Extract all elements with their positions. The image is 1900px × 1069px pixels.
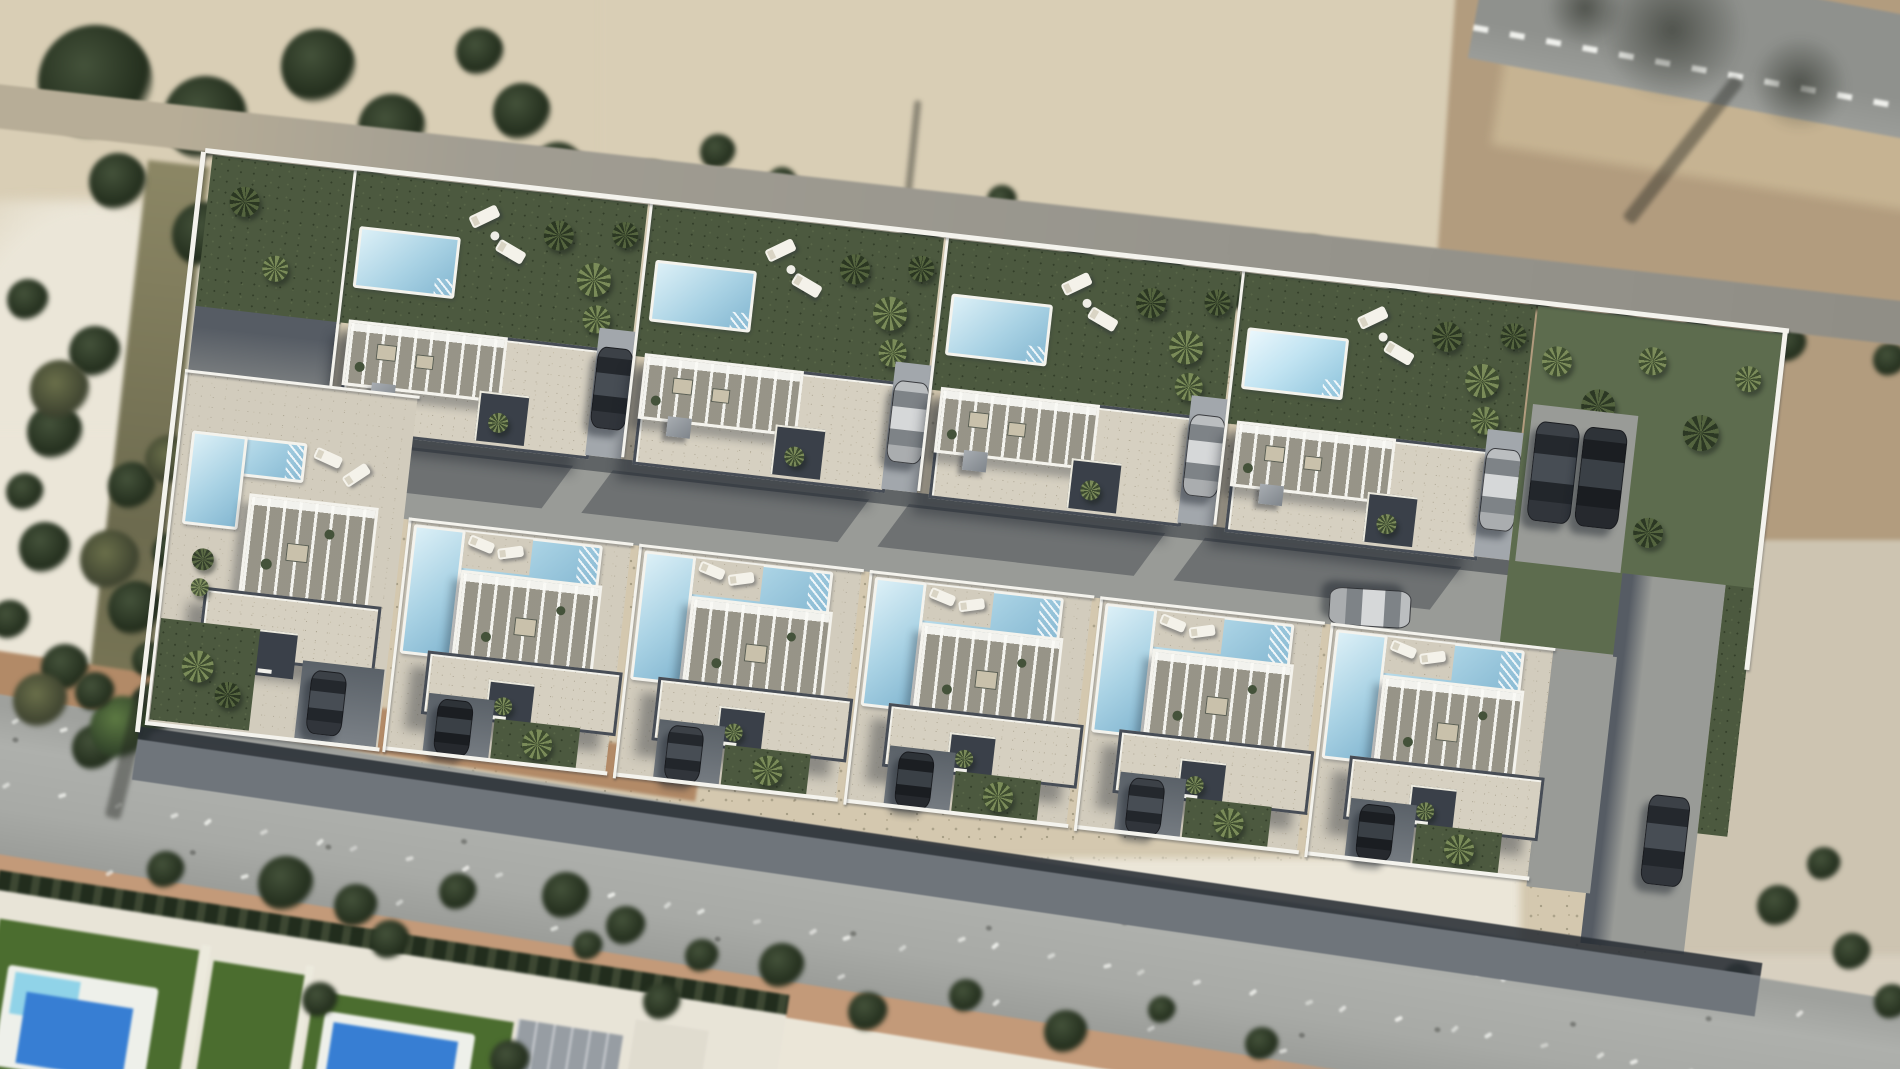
pool-steps [575,546,599,588]
road-marking [395,899,404,907]
patio-lightwell [1066,458,1121,513]
pool-deck [692,558,764,601]
sun-lounger [1159,613,1187,633]
pool-deck [1153,611,1225,654]
road-marking [1484,1032,1493,1039]
bush [456,28,504,76]
pergola-furniture [672,377,694,395]
bottom-villa-1 [145,369,420,751]
pergola-furniture [1303,455,1322,471]
road-marking [663,901,672,909]
parked-car [1124,777,1166,837]
courtyard-plant [724,723,744,743]
pergola-plant [1172,710,1183,721]
road-marking [753,919,762,925]
road-marking [11,718,20,725]
road-marking [1249,989,1258,997]
pergola-plant [324,529,335,540]
pool-water [185,434,245,527]
aerial-scene [0,0,1900,1069]
pool-steps [806,572,830,614]
road-marking [58,793,67,799]
pergola-furniture [285,543,309,563]
bush [439,873,477,911]
bush [6,473,44,511]
bush [89,153,147,211]
sun-lounger [958,598,985,612]
pool-steps [730,312,750,330]
sun-lounger [1389,639,1417,659]
bush [281,29,356,104]
pergola-plant [711,658,722,669]
ac-unit [962,450,988,473]
pergola-plant [1478,711,1488,721]
road-marking [1305,999,1314,1006]
road-marking [495,872,504,878]
courtyard-plant [1415,801,1435,821]
road-marking [1394,1015,1403,1022]
pergola-furniture [1435,722,1459,742]
pergola-furniture [1205,696,1229,716]
bush [685,939,719,973]
road-marking [607,892,616,899]
bush [30,360,90,420]
road-marking [259,829,268,836]
pergola-plant [786,632,796,642]
pool-steps [1322,379,1342,397]
bottom-villa-6 [1304,622,1555,882]
pergola-plant [1247,685,1257,695]
pergola-plant [556,606,566,616]
door [257,668,271,674]
road-speck [461,839,468,845]
bush [302,982,338,1018]
road-marking [1192,979,1201,985]
bush [1873,343,1900,377]
garden-pool [353,226,461,299]
pergola-furniture [968,411,990,429]
bush [147,851,185,889]
pergola-furniture [513,617,537,637]
bush [334,884,378,928]
road-marking [992,999,1001,1007]
bush [1757,885,1799,927]
sun-lounger [1189,624,1216,638]
courtyard-plant [493,696,513,716]
ac-unit [666,416,692,439]
ac-unit [1258,484,1284,507]
bush [13,673,68,728]
bottom-villa-4 [843,570,1094,830]
pergola-plant [650,395,661,406]
bush [949,979,983,1013]
road-marking [1047,952,1056,959]
road-marking [1795,1010,1804,1018]
sun-lounger [467,534,495,554]
road-marking [957,936,966,943]
road-marking [1136,969,1145,977]
road-speck [850,931,857,937]
bush [542,872,590,920]
pool-deck [462,532,534,575]
pergola-plant [946,429,957,440]
patio-lightwell [474,391,529,446]
pergola-furniture [1007,422,1026,438]
road-marking [550,925,559,932]
road-marking [203,818,212,826]
bush [258,856,314,912]
bush [573,931,603,961]
road-speck [189,850,196,856]
pergola-furniture [1264,445,1286,463]
bush [7,279,49,321]
pergola-furniture [376,344,398,362]
road-marking [1629,1059,1638,1066]
bush [1245,1027,1279,1061]
road-speck [1298,1032,1305,1038]
parked-car [893,750,935,810]
sun-lounger [698,561,726,581]
pool-steps [285,444,305,480]
pool-steps [433,278,453,296]
bush [19,522,71,574]
parked-car [305,669,348,737]
bush [80,530,140,590]
bottom-villa-2 [382,517,633,777]
sun-lounger [497,546,524,560]
development-plot [139,152,1784,908]
pool-steps [1497,651,1521,693]
pergola-furniture [415,354,434,370]
pergola-plant [480,631,491,642]
road-speck [1434,1027,1441,1033]
pool-steps [1026,345,1046,363]
road-marking [2,782,11,789]
bush [643,983,681,1021]
garden-pool [649,260,757,333]
road-marking [1147,1025,1156,1032]
pergola-plant [1402,736,1413,747]
pergola-plant [1017,658,1027,668]
road-marking [1279,1048,1288,1054]
road-marking [405,856,414,862]
patio-plant [783,446,805,468]
pool-deck [923,584,995,627]
patio-lightwell [1362,492,1417,547]
parked-car [1354,803,1396,863]
bush [759,943,805,989]
pool-l-vertical [182,430,248,530]
sun-lounger [928,587,956,607]
road-marking [240,874,249,880]
bush [1750,34,1850,134]
road-marking [898,944,907,952]
bottom-villa-5 [1074,596,1325,856]
sun-lounger [1419,651,1446,665]
garden-pool [1241,327,1349,400]
pool-deck [1384,637,1456,680]
road-marking [170,812,179,819]
bush [1833,933,1871,971]
pergola-plant [1242,463,1253,474]
road-marking [1338,1005,1347,1013]
road-marking [1540,1042,1549,1048]
road-speck [12,737,19,743]
bush [493,83,551,141]
parked-car [663,724,705,784]
road-speck [986,925,993,931]
pergola-plant [354,361,365,372]
road-speck [714,936,721,942]
patio-lightwell [770,424,825,479]
plot-corner-lawn [195,155,357,325]
top-villa-2 [621,203,946,493]
bush [848,992,888,1032]
pergola-plant [941,684,952,695]
road-speck [1705,1016,1712,1022]
patio-plant [1375,513,1397,535]
pergola-furniture [744,643,768,663]
bush [75,672,115,712]
road-marking [59,727,68,733]
road-marking [461,865,470,873]
road-marking [837,973,846,980]
bush [1807,847,1841,881]
road-marking [842,935,851,941]
courtyard-plant [954,749,974,769]
pergola [238,493,379,609]
pool-steps [1267,625,1291,667]
top-villa-4 [1213,270,1538,560]
road-marking [349,845,358,852]
bottom-villa-3 [613,544,864,804]
courtyard-plant [1185,775,1205,795]
patio-plant [1079,479,1101,501]
road-marking [809,928,818,936]
top-villa-3 [917,236,1242,526]
road-marking [1103,963,1112,969]
bush [606,906,646,946]
road-marking [1596,1052,1605,1060]
road-marking [316,838,325,846]
garden-pool [945,293,1053,366]
road-speck [1570,1021,1577,1027]
road-speck [325,844,332,850]
road-marking [991,942,1000,950]
bush [1044,1010,1088,1054]
pergola-plant [260,558,272,570]
pergola-furniture [711,388,730,404]
bush [1148,996,1176,1024]
parked-car [432,698,474,758]
patio-plant [487,412,509,434]
bush [370,920,410,960]
pergola-furniture [974,670,998,690]
pool-steps [1036,598,1060,640]
sun-lounger [728,572,755,586]
road-marking [1450,1025,1459,1033]
road-marking [696,908,705,915]
